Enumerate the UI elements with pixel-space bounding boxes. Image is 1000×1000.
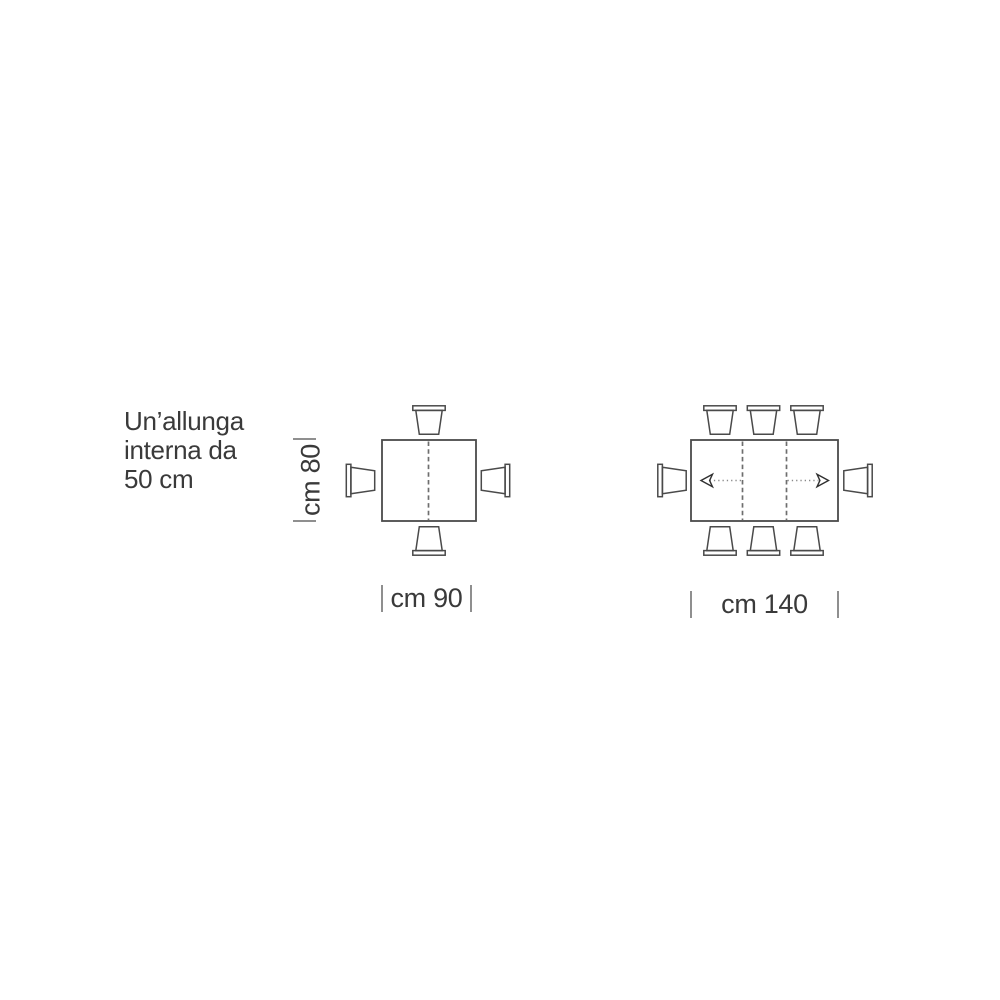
closed-table-chair-bottom-icon [413,527,445,555]
extended-table-top [691,440,838,521]
closed-width-dimension-cm90: cm 90 [381,585,472,612]
depth-dimension-cm80: cm 80 [293,438,316,522]
extended-table-chair-bottom-3-icon [791,527,823,555]
extended-table-chair-bottom-1-icon [704,527,736,555]
closed-width-dimension-label: cm 90 [390,583,462,614]
extendable-table-diagram: Un’allunga interna da 50 cm [0,0,1000,1000]
depth-dimension-label: cm 80 [295,444,326,516]
closed-table-group [346,406,509,555]
closed-table-chair-right-icon [481,464,509,496]
extended-table-chair-top-2-icon [747,406,779,434]
extended-width-dimension-label: cm 140 [721,589,808,620]
plan-drawing [0,0,1000,1000]
extended-table-chair-top-1-icon [704,406,736,434]
extension-arrow-left-icon [701,474,741,487]
extended-table-chair-bottom-2-icon [747,527,779,555]
extended-table-chair-top-3-icon [791,406,823,434]
extended-table-group [658,406,872,555]
extended-table-chair-right-icon [844,464,872,496]
extension-arrow-right-icon [788,474,829,487]
extended-table-chair-left-icon [658,464,686,496]
extended-width-dimension-cm140: cm 140 [690,591,839,618]
closed-table-chair-top-icon [413,406,445,434]
closed-table-chair-left-icon [346,464,374,496]
